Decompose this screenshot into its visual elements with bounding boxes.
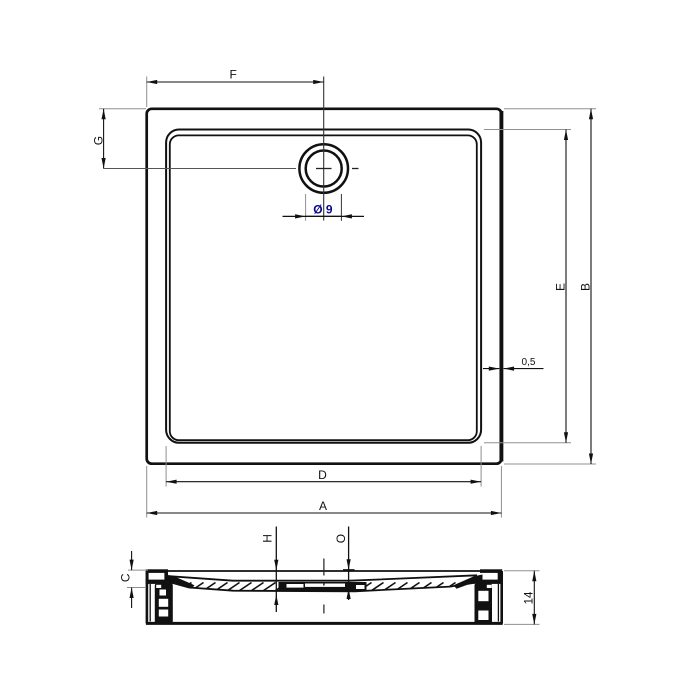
svg-text:14: 14 — [524, 591, 536, 604]
svg-text:C: C — [119, 573, 133, 582]
svg-text:O: O — [334, 534, 348, 543]
svg-text:G: G — [91, 136, 105, 145]
svg-text:D: D — [318, 468, 327, 482]
svg-text:A: A — [319, 499, 327, 513]
svg-text:F: F — [230, 68, 237, 82]
svg-text:B: B — [579, 283, 593, 291]
svg-text:H: H — [260, 534, 274, 543]
svg-text:0,5: 0,5 — [522, 357, 536, 368]
svg-text:Ø 9: Ø 9 — [313, 202, 333, 216]
svg-text:E: E — [554, 283, 568, 291]
